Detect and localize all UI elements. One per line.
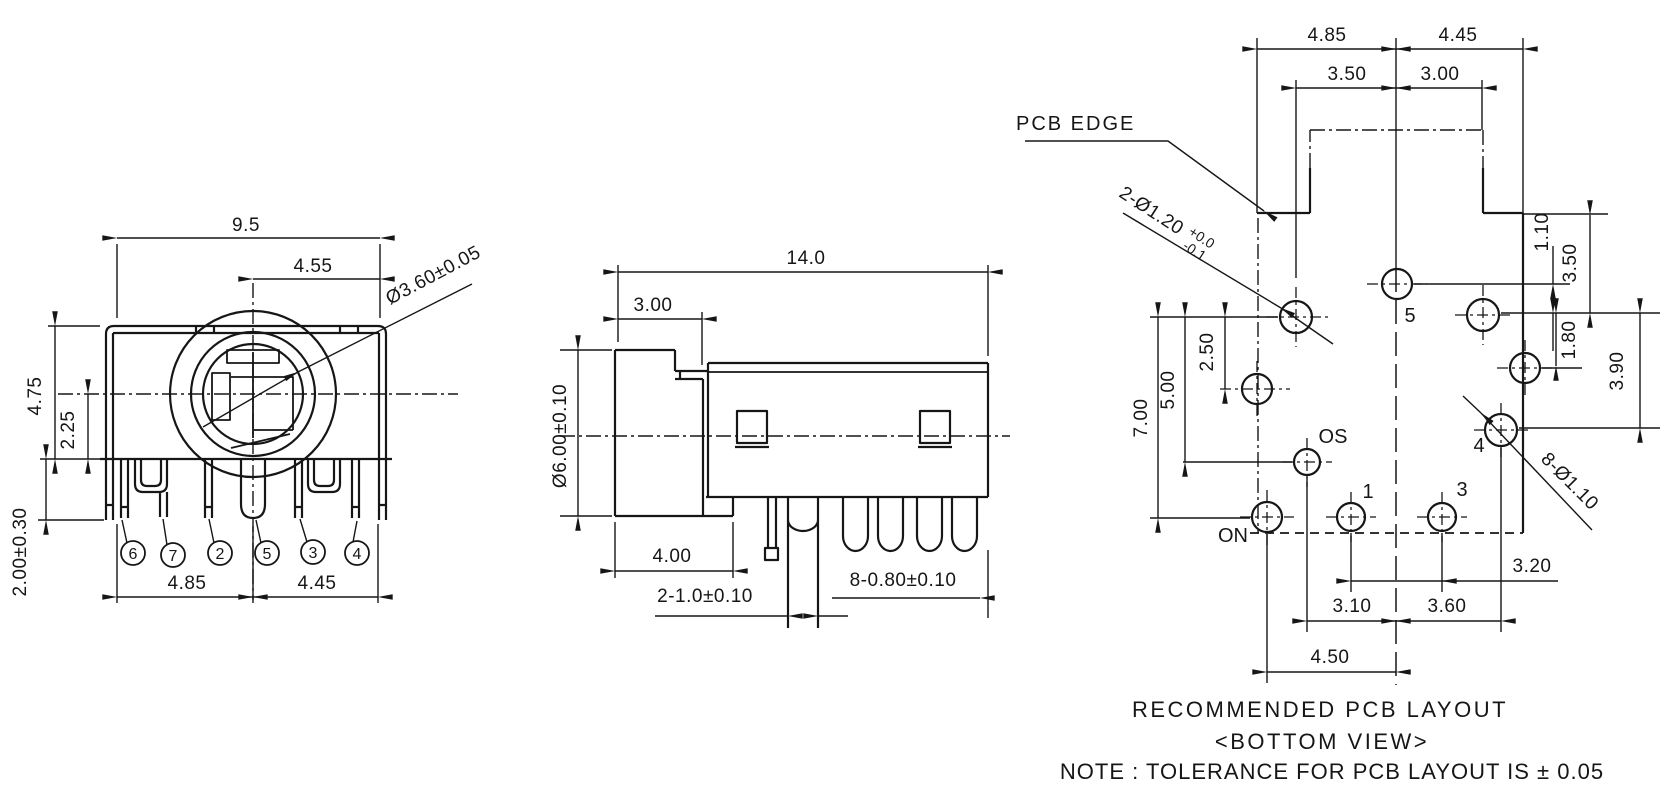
dim-base: 4.00 (653, 546, 692, 567)
hole-os-label: OS (1319, 426, 1348, 448)
dim-legs: 8-0.80±0.10 (850, 570, 957, 591)
pin-label-leaders (122, 519, 357, 545)
connector-drawing: 9.5 4.55 Ø3.60±0.05 4.75 2.25 2.00±0.30 … (0, 0, 1674, 796)
side-legs (765, 497, 977, 628)
hole-4-label: 4 (1473, 435, 1484, 457)
mount-hole-callout: 2-Ø1.20 +0.0 -0.1 (1111, 180, 1217, 264)
pcb-edge-label: PCB EDGE (1016, 113, 1135, 135)
mount-hole-text: 2-Ø1.20 (1115, 183, 1187, 240)
side-body-outline (615, 350, 988, 516)
dim-barrel-dia: Ø6.00±0.10 (550, 384, 571, 488)
dim-center-pins: 2-1.0±0.10 (657, 586, 753, 607)
dim-width: 9.5 (232, 215, 260, 236)
side-view: 14.0 3.00 Ø6.00±0.10 4.00 2-1.0±0.10 8-0… (550, 248, 1010, 628)
dim-barrel-length: 3.00 (634, 295, 673, 316)
dim-barrel-dia: Ø3.60±0.05 (382, 242, 484, 309)
hole-3-label: 3 (1456, 479, 1467, 501)
dim-height: 4.75 (25, 377, 46, 416)
dim-center-height: 2.25 (58, 411, 79, 450)
pin-5-label: 5 (263, 546, 272, 563)
pin-3-label: 3 (309, 545, 318, 562)
dim-notch-right: 3.00 (1421, 64, 1460, 85)
side-extension-lines (560, 265, 988, 618)
pin-6-label: 6 (129, 546, 138, 563)
pin-holes-leader (1463, 396, 1481, 413)
dim-b2: 3.10 (1333, 596, 1372, 617)
hole-5-label: 5 (1404, 305, 1415, 327)
pcb-edge-solid (1257, 168, 1523, 533)
pin-7-label: 7 (169, 548, 178, 565)
side-bumps (735, 411, 952, 447)
dim-pitch-left: 4.85 (168, 573, 207, 594)
dim-top-right: 4.45 (1439, 25, 1478, 46)
dim-pitch-right: 4.45 (298, 573, 337, 594)
dim-notch-left: 3.50 (1328, 64, 1367, 85)
dim-r4: 3.90 (1607, 352, 1628, 391)
pcb-layout-view: 4.85 4.45 3.50 3.00 PCB EDGE 2-Ø1.20 +0.… (1016, 25, 1660, 784)
pin-4-label: 4 (353, 546, 362, 563)
dim-l3: 2.50 (1197, 333, 1218, 372)
caption-note: NOTE : TOLERANCE FOR PCB LAYOUT IS ± 0.0… (1060, 759, 1604, 784)
dim-b3: 3.60 (1428, 596, 1467, 617)
dim-l2: 5.00 (1158, 371, 1179, 410)
dim-r1: 1.10 (1532, 213, 1553, 252)
pin-number-badges: 6 7 2 5 3 4 (121, 540, 369, 567)
caption-title: RECOMMENDED PCB LAYOUT (1132, 697, 1508, 722)
front-legs (121, 459, 359, 518)
pin-2-label: 2 (216, 546, 225, 563)
dim-r3: 1.80 (1559, 321, 1580, 360)
hole-1-label: 1 (1362, 481, 1373, 503)
dim-length: 14.0 (787, 248, 826, 269)
caption-subtitle: <BOTTOM VIEW> (1215, 729, 1429, 754)
front-view: 9.5 4.55 Ø3.60±0.05 4.75 2.25 2.00±0.30 … (10, 215, 484, 603)
dim-top-left: 4.85 (1308, 25, 1347, 46)
dim-leg-length: 2.00±0.30 (10, 508, 31, 597)
barrel-dia-leader-tail (203, 372, 298, 427)
dim-l1: 7.00 (1131, 399, 1152, 438)
pcb-holes (1242, 269, 1540, 532)
dim-r2: 3.50 (1560, 244, 1581, 283)
technical-drawing-page: 9.5 4.55 Ø3.60±0.05 4.75 2.25 2.00±0.30 … (0, 0, 1674, 796)
dim-b1: 3.20 (1513, 556, 1552, 577)
mount-hole-leader-tail (1281, 308, 1333, 344)
dim-b4: 4.50 (1311, 647, 1350, 668)
dim-center-right: 4.55 (294, 256, 333, 277)
hole-on-label: ON (1218, 525, 1248, 547)
